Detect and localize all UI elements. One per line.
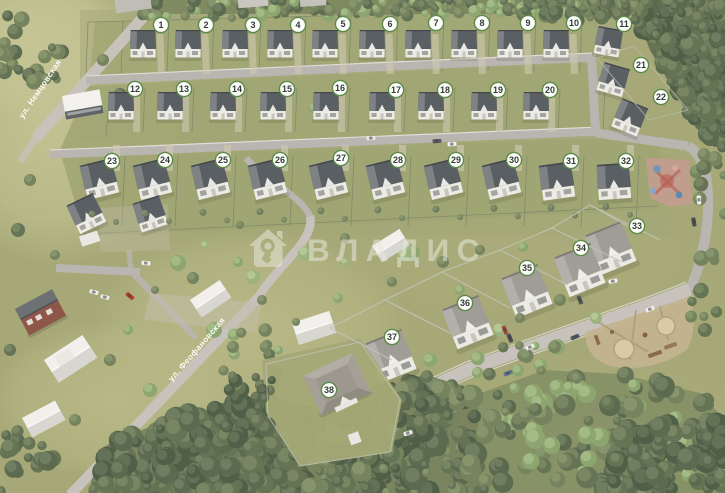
svg-text:34: 34 [576, 243, 586, 253]
svg-text:31: 31 [566, 156, 576, 166]
svg-text:ВЛАДИС: ВЛАДИС [307, 232, 487, 268]
svg-text:11: 11 [619, 19, 629, 29]
svg-text:21: 21 [636, 60, 646, 70]
svg-text:22: 22 [656, 92, 666, 102]
svg-text:10: 10 [569, 18, 579, 28]
svg-text:14: 14 [232, 84, 242, 94]
svg-text:1: 1 [158, 20, 163, 30]
svg-text:13: 13 [179, 84, 189, 94]
svg-text:5: 5 [340, 19, 345, 29]
svg-text:18: 18 [440, 85, 450, 95]
svg-text:17: 17 [391, 85, 401, 95]
svg-text:28: 28 [393, 155, 403, 165]
svg-text:35: 35 [522, 263, 532, 273]
svg-text:6: 6 [387, 19, 392, 29]
svg-text:20: 20 [545, 85, 555, 95]
svg-text:24: 24 [160, 155, 170, 165]
svg-text:4: 4 [295, 20, 300, 30]
svg-text:2: 2 [203, 20, 208, 30]
svg-text:27: 27 [336, 153, 346, 163]
svg-text:33: 33 [632, 221, 642, 231]
svg-text:32: 32 [621, 156, 631, 166]
svg-text:25: 25 [218, 155, 228, 165]
svg-text:36: 36 [460, 298, 470, 308]
svg-text:12: 12 [130, 84, 140, 94]
svg-text:15: 15 [282, 84, 292, 94]
svg-text:29: 29 [451, 155, 461, 165]
svg-text:19: 19 [493, 85, 503, 95]
svg-text:7: 7 [433, 18, 438, 28]
svg-text:26: 26 [275, 155, 285, 165]
svg-text:37: 37 [387, 332, 397, 342]
svg-text:16: 16 [335, 83, 345, 93]
svg-text:9: 9 [525, 18, 530, 28]
svg-text:8: 8 [479, 18, 484, 28]
svg-text:23: 23 [107, 156, 117, 166]
svg-text:3: 3 [250, 20, 255, 30]
svg-text:30: 30 [509, 155, 519, 165]
svg-text:38: 38 [324, 385, 334, 395]
